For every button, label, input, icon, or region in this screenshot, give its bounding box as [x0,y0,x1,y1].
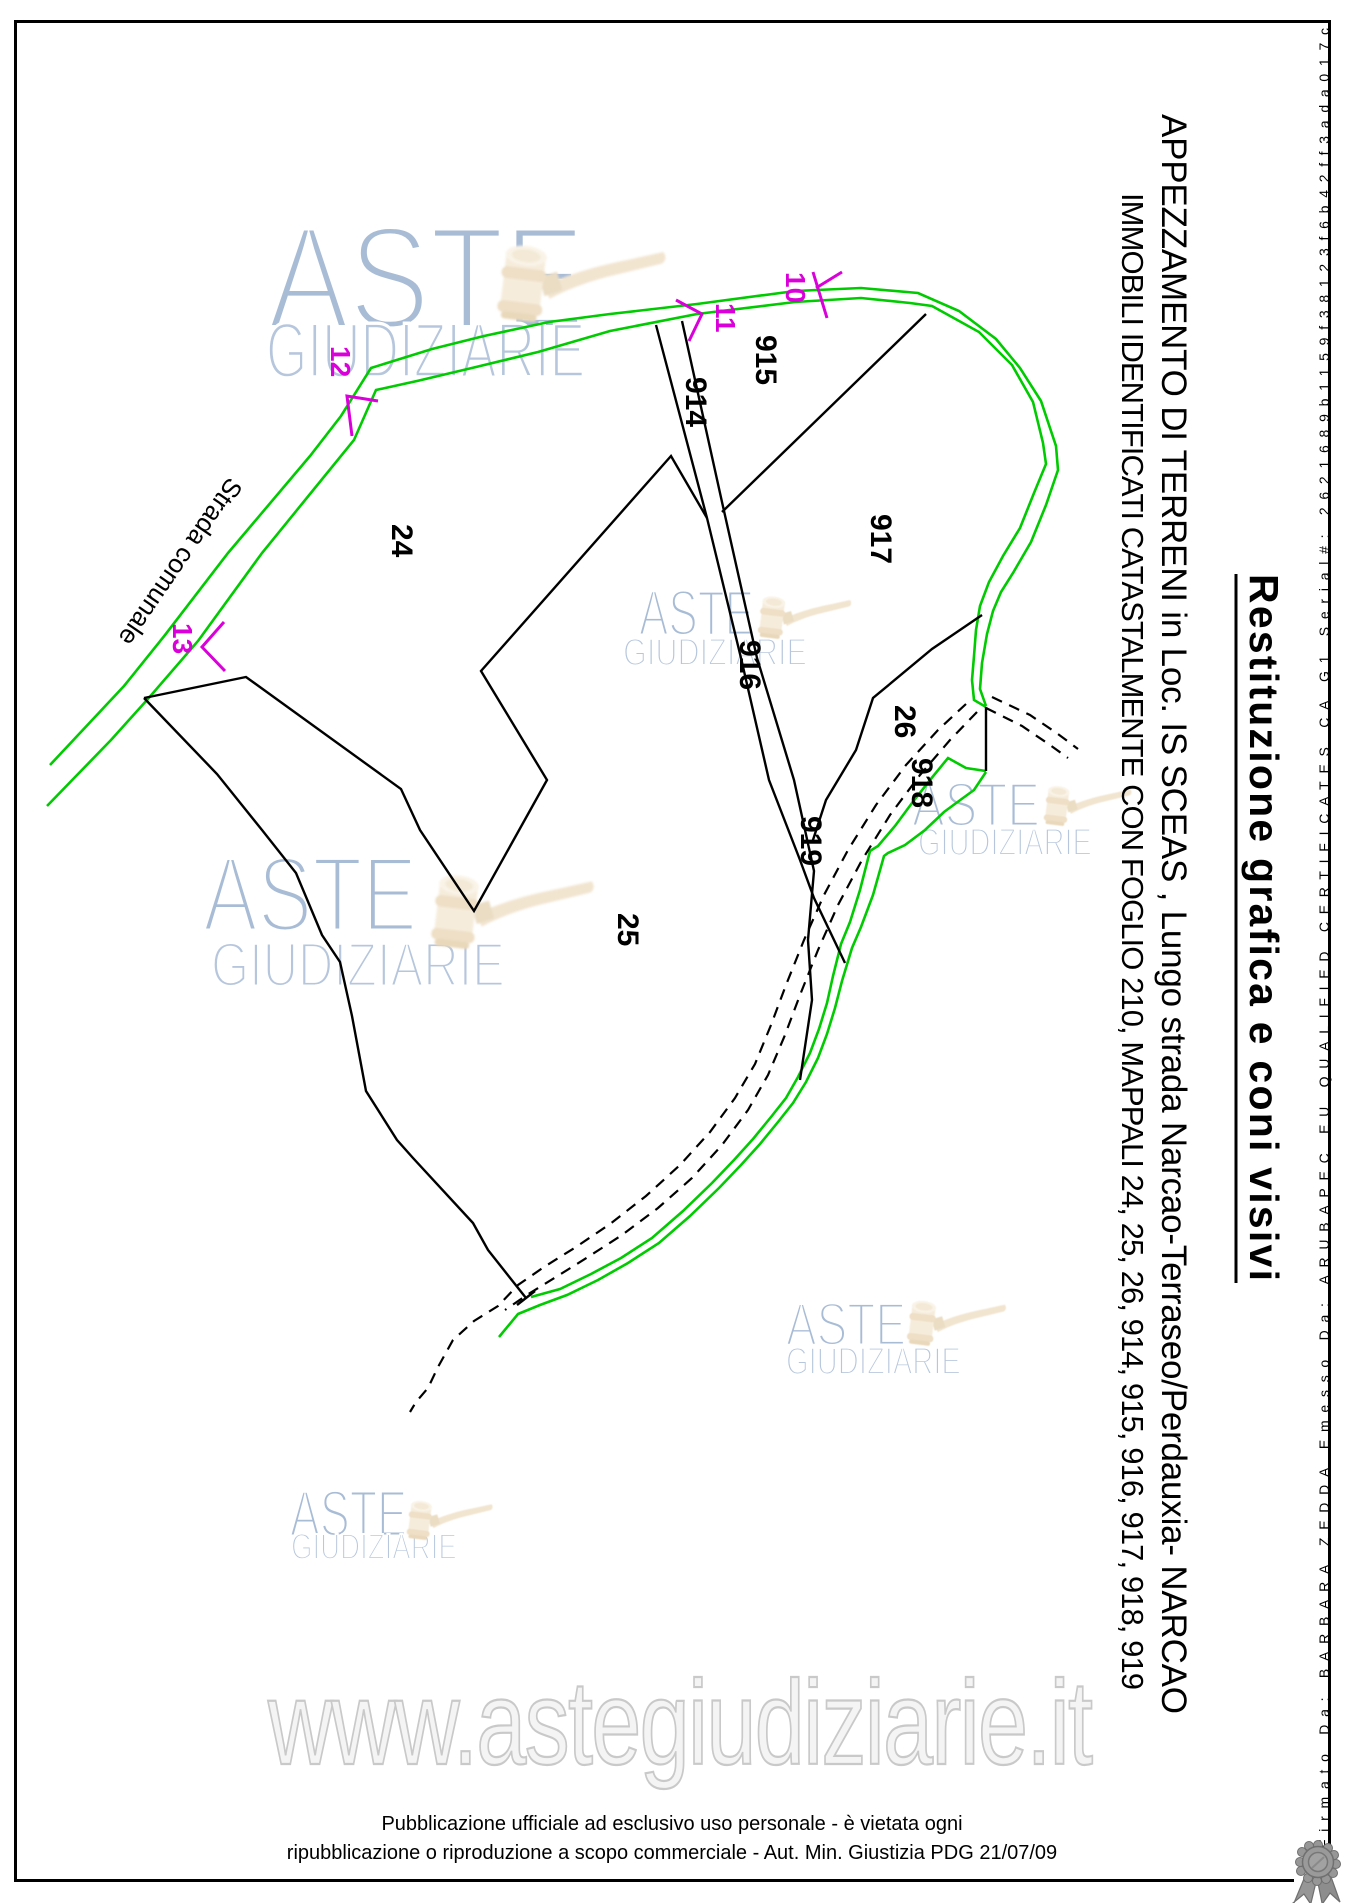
svg-text:Pubblicazione ufficiale ad esc: Pubblicazione ufficiale ad esclusivo uso… [381,1813,962,1835]
svg-text:GIUDIZIARIE: GIUDIZIARIE [623,632,807,674]
svg-text:www.astegiudiziarie.it: www.astegiudiziarie.it [267,1657,1093,1791]
svg-text:916: 916 [733,640,766,690]
svg-text:GIUDIZIARIE: GIUDIZIARIE [291,1526,457,1566]
svg-text:APPEZZAMENTO DI TERRENI in Loc: APPEZZAMENTO DI TERRENI in Loc. IS SCEAS… [1154,114,1193,1714]
svg-text:25: 25 [611,913,644,946]
svg-text:13: 13 [167,623,198,654]
svg-text:Restituzione grafica e coni vi: Restituzione grafica e coni visivi [1241,574,1287,1281]
svg-text:24: 24 [385,524,418,558]
svg-text:GIUDIZIARIE: GIUDIZIARIE [786,1340,961,1383]
svg-text:919: 919 [794,816,827,866]
svg-text:917: 917 [864,514,897,564]
svg-text:26: 26 [888,705,921,738]
svg-text:11: 11 [710,303,741,333]
svg-text:IMMOBILI IDENTIFICATI CATASTAL: IMMOBILI IDENTIFICATI CATASTALMENTE CON … [1115,193,1150,1690]
svg-text:10: 10 [780,272,811,303]
svg-text:12: 12 [325,346,356,377]
svg-text:918: 918 [905,758,938,808]
svg-text:915: 915 [749,335,782,385]
svg-text:GIUDIZIARIE: GIUDIZIARIE [918,821,1092,864]
svg-text:ripubblicazione o riproduzione: ripubblicazione o riproduzione a scopo c… [287,1842,1057,1864]
svg-text:914: 914 [679,377,712,427]
